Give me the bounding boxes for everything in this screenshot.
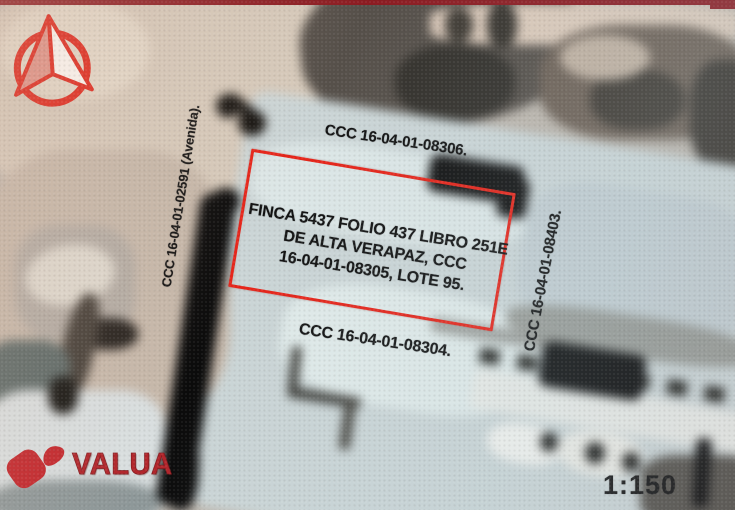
vehicle-shadow	[622, 452, 640, 472]
scan-edge-band-right	[710, 0, 735, 9]
valua-logo-icon	[5, 438, 67, 490]
valua-logo-text: VALUA	[72, 446, 173, 482]
valua-logo: VALUA	[5, 438, 179, 490]
tree-shadow	[395, 45, 515, 120]
vehicle-shadow	[48, 376, 78, 414]
north-arrow-icon	[2, 8, 106, 125]
tree-shadow	[487, 2, 517, 48]
fence-shadow-strip	[212, 188, 240, 214]
scan-edge-band	[0, 0, 735, 5]
scale-label: 1:150	[603, 470, 677, 501]
terrain-patch	[560, 35, 650, 80]
cadastral-map-page: CCC 16-04-01-08306. FINCA 5437 FOLIO 437…	[0, 0, 735, 510]
vehicle-shadow	[585, 442, 605, 464]
vehicle-shadow	[540, 432, 558, 452]
tree-canopy	[690, 60, 735, 170]
tree-shadow	[445, 8, 473, 42]
